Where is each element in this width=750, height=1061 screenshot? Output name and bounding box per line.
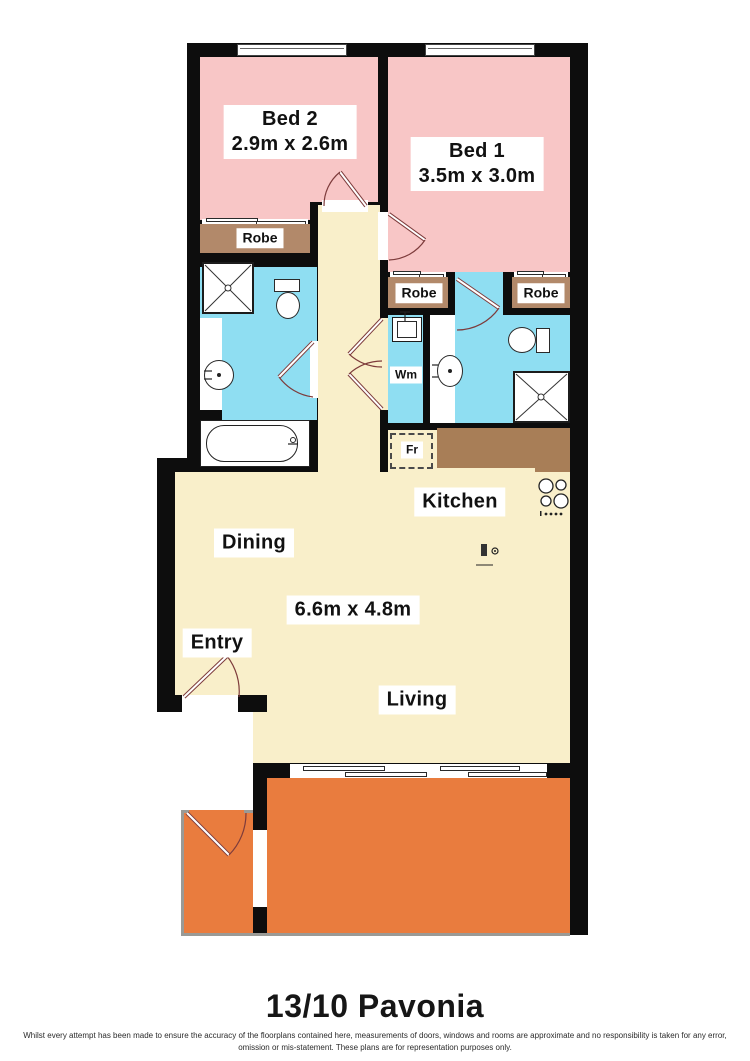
plan-title: 13/10 Pavonia <box>266 988 484 1025</box>
bed1-dims: 3.5m x 3.0m <box>419 164 536 189</box>
bed2-dims: 2.9m x 2.6m <box>232 132 349 157</box>
balcony-left <box>182 810 253 933</box>
bed2-window-line <box>240 48 344 49</box>
balcony-border-top-a <box>181 810 189 813</box>
hallway <box>318 205 380 472</box>
robe1b-slider-panel <box>517 271 544 275</box>
robe-label-bed1-left: Robe <box>396 283 443 303</box>
kitchen-counter-top <box>437 428 537 468</box>
robe2-slider-panel-1 <box>206 218 258 222</box>
toilet-main-bowl <box>276 292 300 319</box>
dining-label: Dining <box>214 529 294 558</box>
sink-ensuite <box>437 355 463 387</box>
bed2-window <box>237 44 347 56</box>
sliding-door-panel-4 <box>468 772 547 777</box>
wall-balcony-pillar-lower <box>253 907 267 935</box>
living-label: Living <box>379 686 456 715</box>
ensuite-door-opening <box>455 272 503 315</box>
fridge-label: Fr <box>401 442 423 459</box>
entry-door-opening <box>182 695 238 712</box>
wall-balcony-right <box>570 778 588 935</box>
shower-main <box>202 262 254 314</box>
bed1-door-opening <box>378 212 388 260</box>
bathroom-door-opening <box>310 341 318 398</box>
bed2-label: Bed 2 2.9m x 2.6m <box>224 105 357 159</box>
washing-machine-label: Wm <box>390 367 422 384</box>
balcony-border-top-b <box>244 810 253 813</box>
laundry-sink-basin <box>397 321 417 338</box>
kitchen-label: Kitchen <box>414 488 505 517</box>
balcony-border-left <box>181 810 184 935</box>
living-dims-label: 6.6m x 4.8m <box>287 596 420 625</box>
sliding-door-panel-2 <box>345 772 427 777</box>
bed2-name: Bed 2 <box>232 107 349 132</box>
sliding-door-panel-1 <box>303 766 385 771</box>
robe-label-bed2: Robe <box>237 228 284 248</box>
bed1-window-line <box>428 48 532 49</box>
toilet-ensuite-cistern <box>536 328 550 353</box>
toilet-ensuite-bowl <box>508 327 536 353</box>
wall-vanity-tub <box>200 410 222 420</box>
exterior-notch <box>157 712 253 778</box>
bed1-window <box>425 44 535 56</box>
toilet-main-cistern <box>274 279 300 292</box>
robe1a-slider-panel <box>393 271 421 275</box>
bed1-name: Bed 1 <box>419 139 536 164</box>
sink-main <box>204 360 234 390</box>
disclaimer-text: Whilst every attempt has been made to en… <box>11 1030 739 1055</box>
robe-label-bed1-right: Robe <box>518 283 565 303</box>
shower-ensuite <box>513 371 570 423</box>
bed2-door-opening <box>322 200 368 212</box>
laundry-door-opening <box>380 318 388 410</box>
balcony-border-bottom <box>181 933 570 936</box>
entry-label: Entry <box>183 629 252 658</box>
sliding-door-panel-3 <box>440 766 520 771</box>
balcony-main <box>267 778 570 933</box>
bathtub <box>206 425 298 462</box>
floor-plan: Bed 2 2.9m x 2.6m Bed 1 3.5m x 3.0m Robe… <box>0 0 750 1061</box>
bed1-label: Bed 1 3.5m x 3.0m <box>411 137 544 191</box>
